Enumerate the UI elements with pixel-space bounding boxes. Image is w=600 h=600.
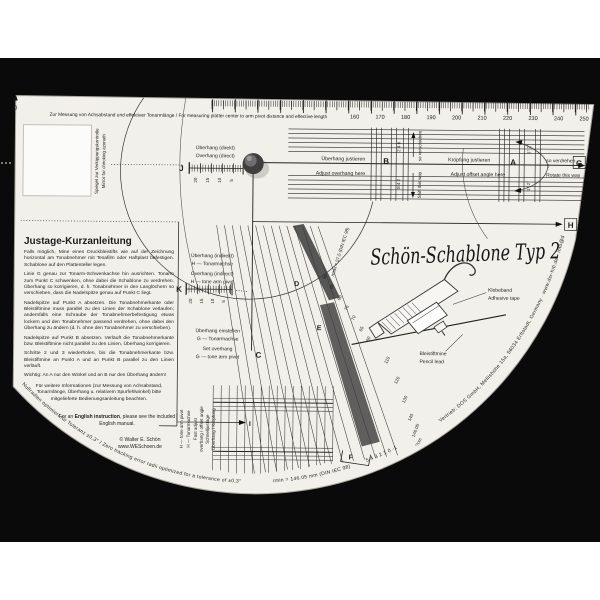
scale-j-num: 10 [217, 177, 222, 183]
rotate-label-de: so verdrehen [546, 158, 575, 164]
ruler-tick: 210 [477, 116, 486, 122]
copyright-line: © Walter E. Schön [98, 437, 182, 444]
set-overhang-de2: G — Tonarmachse [197, 336, 239, 342]
ruler-tick: 190 [426, 115, 435, 121]
lead-label-en: Pencil lead [419, 359, 444, 365]
instructions-heading: Justage-Kurzanleitung [24, 236, 174, 247]
adjust-offset-de: Kröpfung justieren [448, 157, 490, 163]
fastadjust-en1: Fast adjust [193, 417, 198, 440]
ruler-tick: 230 [528, 116, 537, 122]
point-k-label: K [176, 285, 182, 294]
scale-j-num: 20 [193, 177, 198, 183]
a-degree-numbers-bottom: 1° 2° [526, 181, 531, 191]
shift-label-en: Shift this way [417, 171, 422, 198]
mirror-label-en: Mirror for checking azimuth [101, 134, 106, 189]
azimuth-mirror [23, 125, 92, 197]
point-j-label: J [179, 164, 184, 173]
scale-j-label-en: Overhang (direct) [196, 153, 235, 159]
scale-j-num: 15 [205, 177, 210, 183]
ruler-tick: 160 [350, 114, 359, 120]
set-overhang-en2: G — tone arm pivot [196, 354, 240, 360]
instructions-paragraph: Für weitere Informationen (zur Messung v… [24, 384, 174, 403]
set-overhang-en1: Set overhang [203, 346, 233, 352]
shift-label-de: so verschieben [417, 130, 422, 161]
point-d-label: D [294, 281, 299, 288]
english-note-bold: English instruction [75, 414, 120, 420]
english-note: For an English instruction, please see t… [58, 414, 176, 428]
point-i-label: I [249, 421, 251, 428]
rotate-label-en: Rotate this way [546, 173, 581, 179]
scanned-protractor-photo: 0 Zur Messung von Achsabstand und effekt… [0, 0, 600, 600]
website-line: www.WESchoen.de [98, 444, 182, 451]
ruler-tick: 240 [554, 116, 563, 122]
scale-k-num: 10 [210, 298, 215, 304]
point-g-label: G [576, 159, 582, 168]
english-note-pre: For an [59, 414, 75, 420]
instructions-block: Justage-Kurzanleitung Falls möglich, Min… [24, 236, 174, 406]
scale-j-label-de: Überhang (direkt) [196, 144, 235, 151]
instructions-paragraph: Falls möglich, Mine eines Druckbleistift… [24, 250, 174, 269]
point-a-label: A [510, 158, 516, 167]
fastadjust-de2: Überhang / Kröpfung [210, 408, 216, 450]
mirror-label-de: Spiegel zur Verkippungskontrolle [94, 128, 100, 194]
tape-label-en: Adhesive tape [488, 296, 520, 302]
scale-k-num: 20 [188, 298, 193, 304]
ruler-tick: 250 [579, 116, 588, 122]
point-e-label: E [317, 325, 322, 332]
lead-label-de: Bleistiftmine [420, 351, 447, 357]
scale-k-en: Overhang (indirect) [191, 271, 234, 277]
instructions-paragraph: Linie G genau zur Tonarm-Schwenkachse hi… [24, 272, 174, 298]
scale-k-de: Überhang (indirekt) [191, 252, 234, 259]
fastadjust-en2: overhang / offset angle [199, 406, 204, 452]
point-b-label: B [383, 157, 389, 166]
point-h-label: H [568, 221, 574, 230]
adjust-offset-en: Adjust offset angle here [451, 172, 506, 178]
ruler-tick: 220 [503, 116, 512, 122]
ruler-tick: 170 [375, 115, 384, 121]
set-overhang-de1: Überhang einstellen [195, 327, 240, 334]
tape-label-de: Klebeband [488, 288, 512, 294]
scale-k-num: 15 [199, 298, 204, 304]
copyright-block: © Walter E. Schön www.WESchoen.de [98, 437, 182, 451]
instructions-paragraph: Schritte 2 und 3 wiederholen, bis die To… [24, 351, 174, 370]
ruler-zero: 0 [14, 105, 17, 111]
fastadjust-de1: Schnelljustage [205, 414, 210, 444]
fastadjust-de3: H — Tonarmachse [186, 410, 191, 448]
ruler-tick: 200 [452, 115, 461, 121]
scale-k-de2: H — Tonarmachse [192, 261, 234, 267]
adjust-overhang-en: Adjust overhang here [316, 171, 365, 177]
b-shift-numbers-bottom: 8 4 2 [396, 178, 401, 189]
instructions-paragraph: Nadelspitze auf Punkt A absetzen. Die To… [24, 301, 174, 333]
instructions-paragraph: Wichtig: An A nur den Winkel und an B nu… [24, 373, 174, 379]
instructions-paragraph: Nadelspitze auf Punkt B absetzen. Verläu… [24, 336, 174, 349]
b-shift-numbers-top: 2 4 6 [396, 141, 401, 152]
adjust-overhang-de: Überhang justieren [321, 155, 365, 162]
ruler-tick: 180 [401, 115, 410, 121]
